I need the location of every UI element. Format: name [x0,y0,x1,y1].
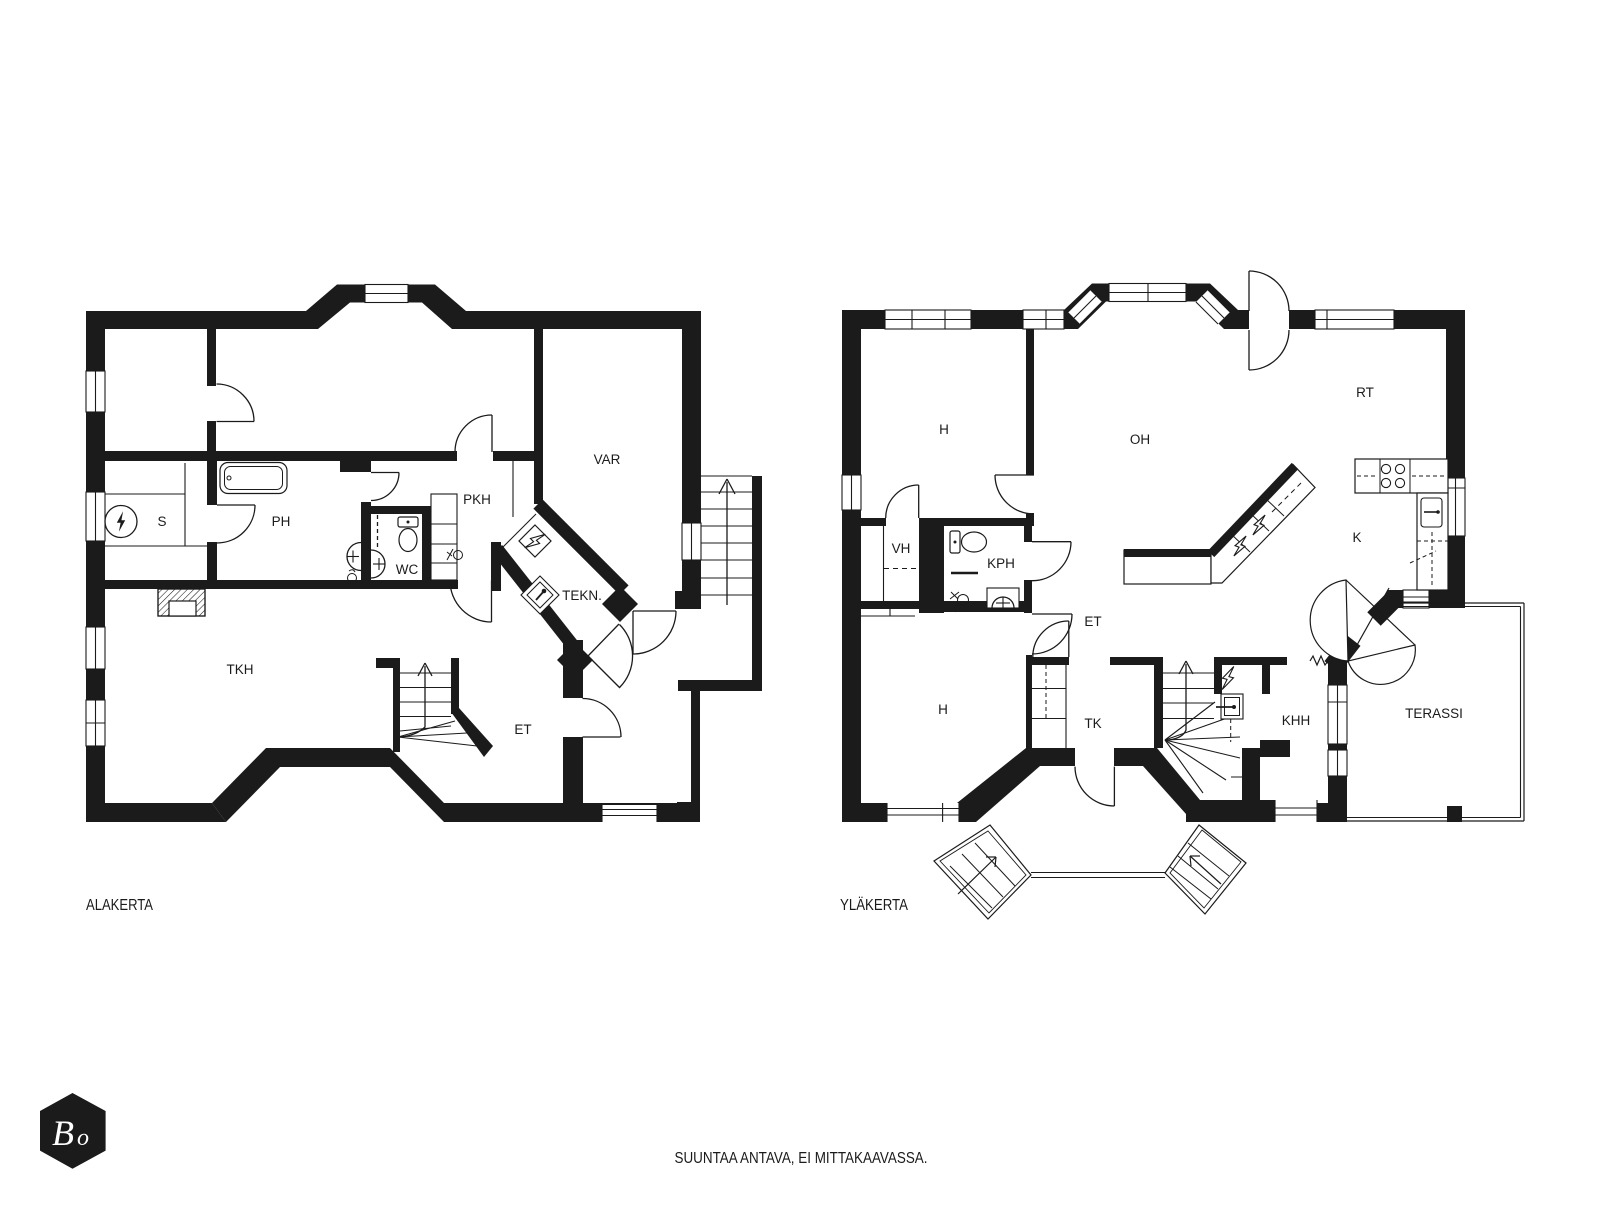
svg-text:SUUNTAA ANTAVA, EI MITTAKAAVAS: SUUNTAA ANTAVA, EI MITTAKAAVASSA. [675,1150,928,1167]
svg-text:VH: VH [892,541,911,556]
svg-text:OH: OH [1130,432,1150,447]
svg-text:RT: RT [1356,385,1374,400]
svg-text:H: H [939,422,949,437]
svg-text:S: S [157,514,166,529]
svg-text:PH: PH [272,514,291,529]
svg-text:VAR: VAR [594,452,621,467]
svg-text:TEKN.: TEKN. [562,588,602,603]
svg-text:H: H [938,702,948,717]
svg-text:ET: ET [1084,614,1101,629]
svg-text:YLÄKERTA: YLÄKERTA [840,897,909,914]
svg-text:KHH: KHH [1282,713,1311,728]
svg-text:KPH: KPH [987,556,1015,571]
svg-text:TK: TK [1084,716,1101,731]
svg-text:TKH: TKH [227,662,254,677]
svg-text:TERASSI: TERASSI [1405,706,1463,721]
svg-text:K: K [1352,530,1361,545]
svg-text:ALAKERTA: ALAKERTA [86,897,154,914]
svg-text:o: o [77,1125,89,1151]
svg-text:B: B [52,1113,74,1153]
svg-text:ET: ET [514,722,531,737]
svg-text:WC: WC [396,562,419,577]
svg-text:PKH: PKH [463,492,491,507]
